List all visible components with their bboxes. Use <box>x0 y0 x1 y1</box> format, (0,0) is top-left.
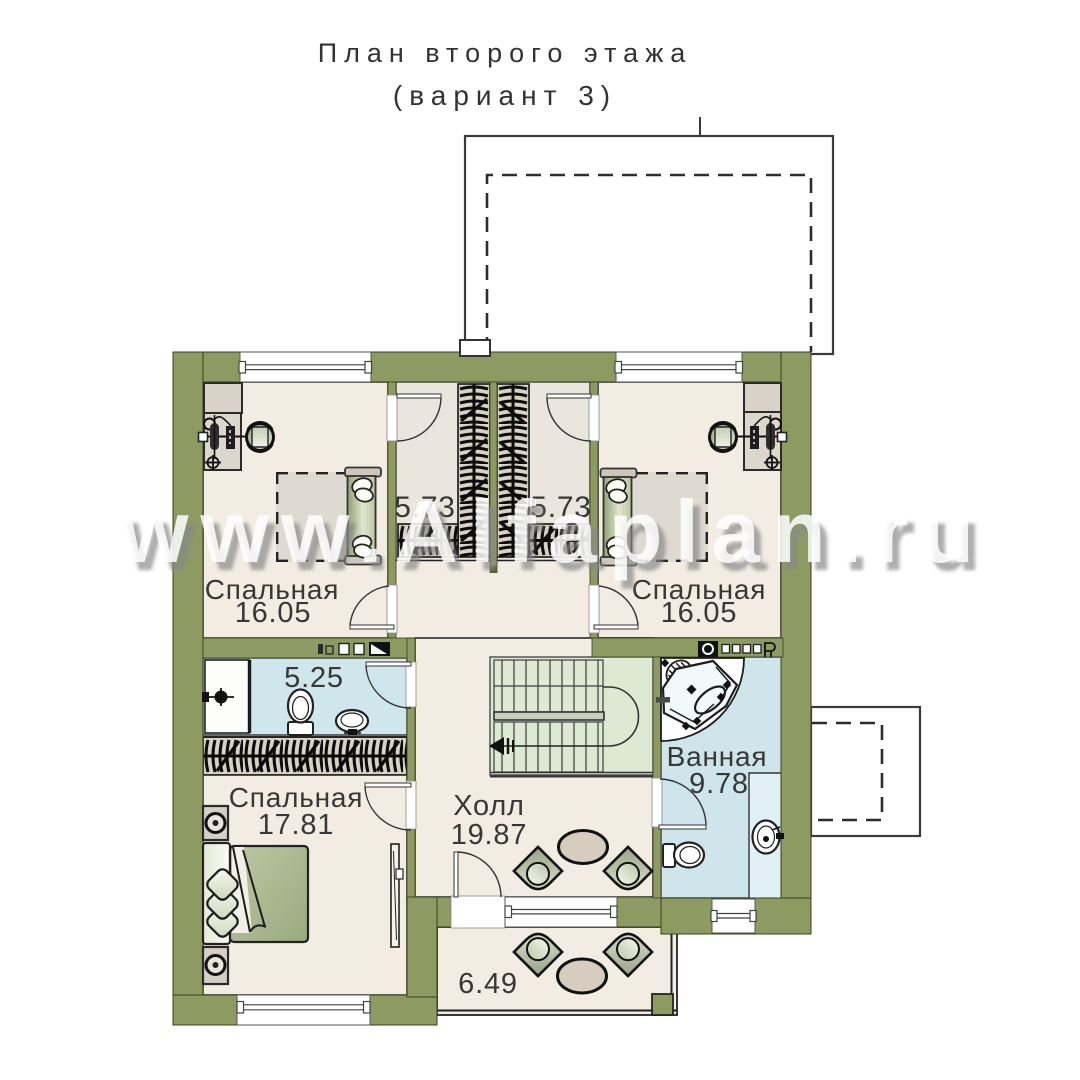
svg-text:Холл: Холл <box>453 790 525 822</box>
svg-text:17.81: 17.81 <box>258 809 335 841</box>
svg-text:5.25: 5.25 <box>284 662 344 694</box>
svg-text:6.49: 6.49 <box>458 968 518 1000</box>
svg-text:19.87: 19.87 <box>451 819 528 851</box>
svg-text:16.05: 16.05 <box>235 597 312 629</box>
svg-text:16.05: 16.05 <box>661 597 738 629</box>
svg-text:План второго этажа: План второго этажа <box>318 38 693 68</box>
svg-text:9.78: 9.78 <box>689 768 749 800</box>
svg-text:www.Alfaplan.ru: www.Alfaplan.ru <box>119 482 986 581</box>
svg-text:(вариант 3): (вариант 3) <box>393 80 617 111</box>
